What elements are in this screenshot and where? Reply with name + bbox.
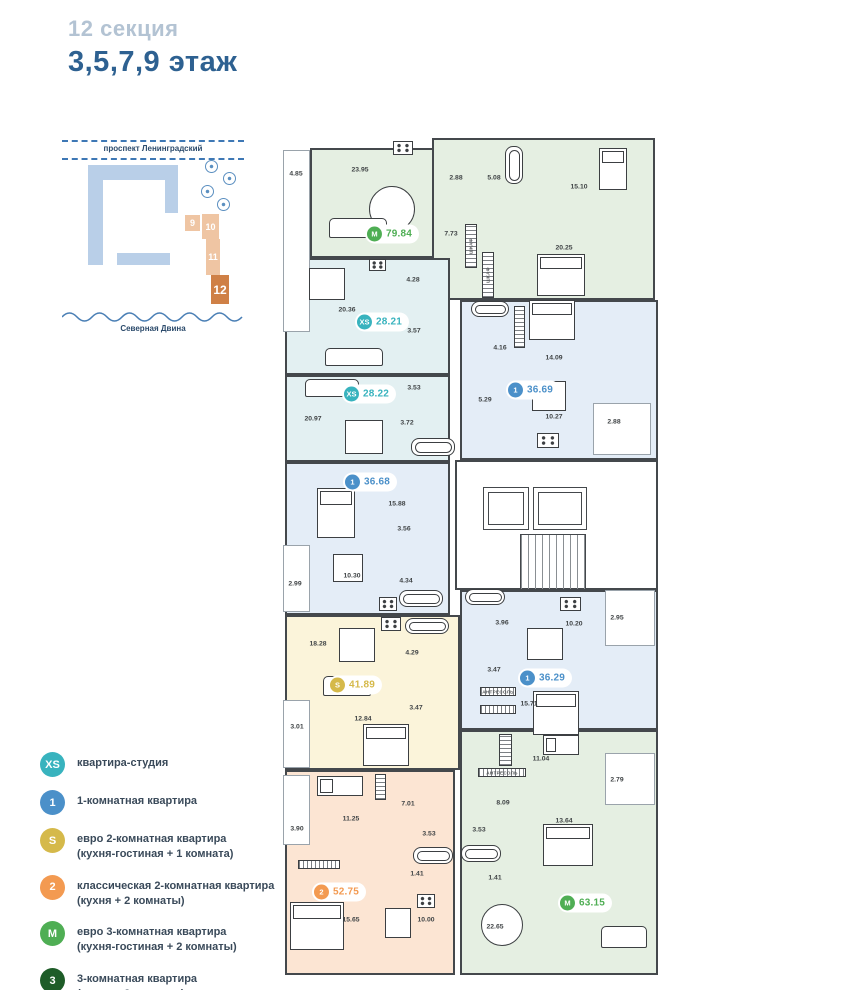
room-area-label: 3.47 [409, 705, 422, 712]
legend-badge-2: 2 [40, 875, 65, 900]
bed-icon [599, 148, 627, 190]
legend-label: классическая 2-комнатная квартира(кухня … [77, 875, 274, 909]
room-area-label: 5.08 [487, 175, 500, 182]
room-area-label: 3.01 [290, 724, 303, 731]
apartment-badge-63.15[interactable]: M63.15 [558, 894, 612, 913]
bed-icon [533, 691, 579, 735]
bath-icon [399, 590, 443, 607]
room-area-label: 11.25 [343, 816, 360, 823]
staircase [520, 534, 586, 590]
building-shape [88, 165, 103, 265]
balcony [283, 545, 310, 612]
room-area-label: 23.95 [351, 167, 368, 174]
apartment-area: 28.21 [376, 317, 402, 328]
street-label: проспект Ленинградский [62, 144, 244, 153]
balcony [283, 775, 310, 845]
legend-label: 3-комнатная квартира(кухня + 3 комнаты) [77, 968, 197, 990]
tree-icon [217, 198, 230, 211]
apartment-badge-36.29[interactable]: 136.29 [518, 669, 572, 688]
tree-icon [205, 160, 218, 173]
room-area-label: 15.65 [342, 917, 359, 924]
apartment-type-icon: XS [357, 315, 372, 330]
river-label: Северная Двина [62, 324, 244, 333]
apartment-area: 36.69 [527, 385, 553, 396]
wardrobe-icon [375, 774, 386, 800]
room-area-label: 3.53 [472, 827, 485, 834]
table-icon [385, 908, 411, 938]
room-area-label: 20.36 [338, 307, 355, 314]
apartment-type-icon: M [560, 896, 575, 911]
legend-label: квартира-студия [77, 752, 168, 771]
sofa-icon [601, 926, 647, 948]
room-area-label: 4.29 [405, 650, 418, 657]
stove-icon [381, 617, 401, 631]
table-icon [345, 420, 383, 454]
sofa-icon [325, 348, 383, 366]
map-section-11[interactable]: 11 [206, 239, 220, 275]
wardrobe-icon [514, 306, 525, 348]
table-icon [309, 268, 345, 300]
room-area-label: 18.28 [309, 641, 326, 648]
room-area-label: 3.53 [422, 831, 435, 838]
room-area-label: 10.20 [565, 621, 582, 628]
room-area-label: 20.97 [304, 416, 321, 423]
apartment-area: 28.22 [363, 389, 389, 400]
room-area-label: 7.01 [401, 801, 414, 808]
room-area-label: 3.57 [407, 328, 420, 335]
bed-icon [290, 902, 344, 950]
bath-icon [505, 146, 523, 184]
stove-icon [379, 597, 397, 611]
room-area-label: 2.79 [610, 777, 623, 784]
elevator [483, 487, 529, 530]
elevator [533, 487, 587, 530]
room-area-label: 15.10 [570, 184, 587, 191]
storage-label: ШКАФ [486, 267, 491, 283]
balcony [593, 403, 651, 455]
room-area-label: 10.27 [545, 414, 562, 421]
legend-label: евро 3-комнатная квартира(кухня-гостиная… [77, 921, 237, 955]
legend-item-XS: XSквартира-студия [40, 752, 274, 777]
legend-item-1: 11-комнатная квартира [40, 790, 274, 815]
tree-icon [201, 185, 214, 198]
apartment-badge-28.22[interactable]: XS28.22 [342, 385, 396, 404]
table-icon [339, 628, 375, 662]
apartment-type-icon: 2 [314, 885, 329, 900]
section-title: 12 секция [68, 16, 237, 42]
room-area-label: 10.30 [343, 573, 360, 580]
legend-badge-XS: XS [40, 752, 65, 777]
apartment-badge-36.69[interactable]: 136.69 [506, 381, 560, 400]
room-area-label: 4.28 [406, 277, 419, 284]
building-shape [165, 165, 178, 213]
balcony [283, 700, 310, 768]
room-area-label: 3.47 [487, 667, 500, 674]
tree-icon [223, 172, 236, 185]
apartment-area: 63.15 [579, 898, 605, 909]
legend-badge-3: 3 [40, 968, 65, 990]
legend-item-3: 33-комнатная квартира(кухня + 3 комнаты) [40, 968, 274, 990]
table-icon [527, 628, 563, 660]
bed-icon [529, 300, 575, 340]
floor-title: 3,5,7,9 этаж [68, 46, 237, 79]
room-area-label: 2.88 [449, 175, 462, 182]
room-area-label: 3.56 [397, 526, 410, 533]
bed-icon [363, 724, 409, 766]
apartment-badge-41.89[interactable]: S41.89 [328, 676, 382, 695]
wardrobe-icon [499, 734, 512, 766]
legend-label: 1-комнатная квартира [77, 790, 197, 809]
bath-icon [411, 438, 455, 456]
page-header: 12 секция 3,5,7,9 этаж [68, 16, 237, 79]
room-area-label: 2.99 [288, 581, 301, 588]
room-area-label: 12.84 [354, 716, 371, 723]
apartment-badge-36.68[interactable]: 136.68 [343, 473, 397, 492]
stove-icon [369, 259, 386, 271]
legend-item-S: Sевро 2-комнатная квартира(кухня-гостина… [40, 828, 274, 862]
antresol-icon [298, 860, 340, 869]
room-area-label: 2.95 [610, 615, 623, 622]
bed-icon [537, 254, 585, 296]
river-wave [62, 310, 244, 324]
apartment-type-legend: XSквартира-студия11-комнатная квартираSе… [40, 752, 274, 990]
map-section-12[interactable]: 12 [211, 275, 229, 304]
room-area-label: 15.88 [388, 501, 405, 508]
legend-label: евро 2-комнатная квартира(кухня-гостиная… [77, 828, 233, 862]
room-area-label: 15.71 [520, 701, 537, 708]
storage-label: ШКАФ [469, 238, 474, 254]
legend-item-M: Mевро 3-комнатная квартира(кухня-гостина… [40, 921, 274, 955]
room-area-label: 3.72 [400, 420, 413, 427]
legend-item-2: 2классическая 2-комнатная квартира(кухня… [40, 875, 274, 909]
storage-label: АНТРЕСОЛЬ [486, 771, 517, 776]
apartment-badge-79.84[interactable]: M79.84 [365, 225, 419, 244]
apartment-type-icon: S [330, 678, 345, 693]
stove-icon [417, 894, 435, 908]
room-area-label: 5.29 [478, 397, 491, 404]
room-area-label: 13.64 [555, 818, 572, 825]
room-area-label: 4.34 [399, 578, 412, 585]
street-dash-line [62, 140, 244, 142]
apartment-area: 41.89 [349, 680, 375, 691]
stove-icon [393, 141, 413, 155]
bath-icon [413, 847, 453, 864]
apartment-area: 36.29 [539, 673, 565, 684]
bath-icon [471, 301, 509, 317]
street-dash-line [62, 158, 244, 160]
apartment-badge-52.75[interactable]: 252.75 [312, 883, 366, 902]
room-area-label: 7.73 [444, 231, 457, 238]
apartment-type-icon: 1 [508, 383, 523, 398]
bath-icon [465, 589, 505, 605]
site-map: проспект Ленинградский 9101112 Северная … [62, 136, 244, 338]
apartment-area: 36.68 [364, 477, 390, 488]
stove-icon [560, 597, 581, 611]
room-area-label: 3.90 [290, 826, 303, 833]
bath-icon [405, 618, 449, 634]
room-area-label: 1.41 [410, 871, 423, 878]
bath-icon [461, 845, 501, 862]
room-area-label: 4.85 [289, 171, 302, 178]
apartment-area: 52.75 [333, 887, 359, 898]
legend-badge-S: S [40, 828, 65, 853]
room-area-label: 4.16 [493, 345, 506, 352]
floor-plan: 4.8523.952.885.0815.107.7320.2520.364.28… [283, 138, 659, 978]
room-area-label: 8.09 [496, 800, 509, 807]
map-section-9[interactable]: 9 [185, 215, 200, 231]
legend-badge-1: 1 [40, 790, 65, 815]
room-area-label: 3.96 [495, 620, 508, 627]
storage-label: АНТРЕСОЛЬ [482, 690, 513, 695]
room-area-label: 1.41 [488, 875, 501, 882]
apartment-type-icon: 1 [345, 475, 360, 490]
bed-s-icon [543, 735, 579, 755]
room-area-label: 10.00 [417, 917, 434, 924]
apartment-type-icon: M [367, 227, 382, 242]
legend-badge-M: M [40, 921, 65, 946]
room-area-label: 20.25 [555, 245, 572, 252]
antresol-icon [480, 705, 516, 714]
room-area-label: 11.04 [533, 756, 550, 763]
stove-icon [537, 433, 559, 448]
bed-s-icon [317, 776, 363, 796]
bed-icon [543, 824, 593, 866]
apartment-area: 79.84 [386, 229, 412, 240]
apartment-badge-28.21[interactable]: XS28.21 [355, 313, 409, 332]
apartment-type-icon: XS [344, 387, 359, 402]
room-area-label: 22.65 [486, 924, 503, 931]
building-shape [117, 253, 170, 265]
room-area-label: 3.53 [407, 385, 420, 392]
apartment-type-icon: 1 [520, 671, 535, 686]
bed-icon [317, 488, 355, 538]
room-area-label: 14.09 [545, 355, 562, 362]
room-area-label: 2.88 [607, 419, 620, 426]
map-section-10[interactable]: 10 [202, 214, 219, 239]
